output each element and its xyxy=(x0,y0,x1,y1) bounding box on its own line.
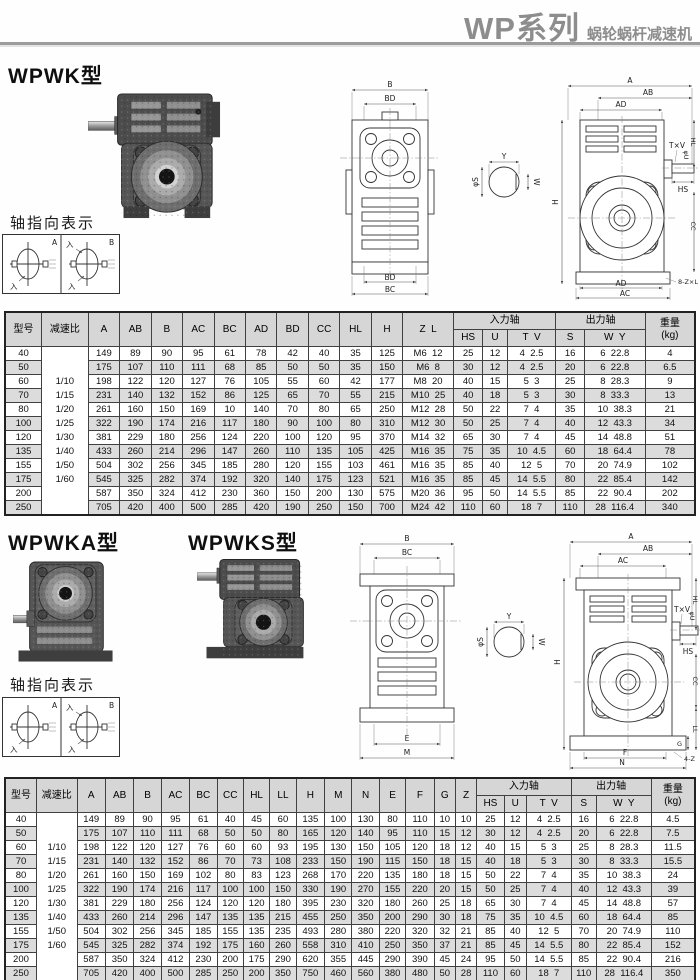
data-cell: 149 xyxy=(88,347,119,361)
data-cell: 160 xyxy=(243,939,269,953)
column-header: A xyxy=(88,312,119,347)
data-cell: 10 4.5 xyxy=(526,911,571,925)
data-cell: 42 xyxy=(277,347,308,361)
data-cell: 15 xyxy=(455,883,476,897)
data-cell: 55 xyxy=(340,389,371,403)
data-cell: 587 xyxy=(77,953,105,967)
data-cell: 40 xyxy=(477,855,504,869)
data-cell: 261 xyxy=(88,403,119,417)
data-cell: 95 xyxy=(453,487,482,501)
data-cell: 45 xyxy=(504,939,526,953)
column-subheader: S xyxy=(556,330,584,347)
data-cell: 20 xyxy=(556,361,584,375)
data-cell: 100 xyxy=(243,883,269,897)
table-row: 1203812291802561241201201803952303201802… xyxy=(5,897,695,911)
data-cell: 140 xyxy=(277,473,308,487)
data-cell: 558 xyxy=(296,939,324,953)
data-cell: 95 xyxy=(477,953,504,967)
data-cell: 73 xyxy=(243,855,269,869)
data-cell: 190 xyxy=(277,501,308,516)
column-header: BC xyxy=(214,312,245,347)
data-cell: 135 xyxy=(308,445,339,459)
data-cell: 285 xyxy=(214,501,245,516)
data-cell: 420 xyxy=(245,501,276,516)
data-cell: 18 7 xyxy=(526,967,571,980)
dim-label: φU xyxy=(688,611,696,620)
data-cell: 50 xyxy=(434,967,455,980)
axis-cell-label: B xyxy=(109,238,114,247)
data-cell: 18 xyxy=(434,869,455,883)
input-direction-mark: 入 xyxy=(10,282,18,291)
data-cell: 202 xyxy=(645,487,695,501)
data-cell: 285 xyxy=(190,967,217,980)
data-cell: 132 xyxy=(151,389,182,403)
ratio-cell: 1/101/151/201/251/301/401/501/60 xyxy=(42,347,89,516)
data-cell: 75 xyxy=(453,445,482,459)
data-cell: 22 85.4 xyxy=(596,939,651,953)
data-cell: 355 xyxy=(325,953,352,967)
data-cell: 108 xyxy=(270,855,296,869)
data-cell: 233 xyxy=(296,855,324,869)
data-cell: 70 xyxy=(571,925,596,939)
data-cell: 10 xyxy=(455,813,476,827)
data-cell: 120 xyxy=(151,375,182,389)
data-cell: 25 xyxy=(483,417,507,431)
data-cell: M12 30 xyxy=(403,417,454,431)
drawing-note: 4-Z xyxy=(684,755,695,763)
data-cell: 545 xyxy=(77,939,105,953)
data-cell: 20 74.9 xyxy=(596,925,651,939)
data-cell: 152 xyxy=(651,939,695,953)
data-cell: 57 xyxy=(651,897,695,911)
column-subheader: T V xyxy=(507,330,556,347)
data-cell: 195 xyxy=(296,841,324,855)
data-cell: 340 xyxy=(645,501,695,516)
data-cell: 10 38.3 xyxy=(584,403,645,417)
data-cell: 120 xyxy=(308,431,339,445)
model-cell: 250 xyxy=(5,967,36,980)
table-row: 6019812212012776105556042177M8 2040155 3… xyxy=(5,375,695,389)
data-cell: 14 5.5 xyxy=(507,473,556,487)
data-cell: 61 xyxy=(214,347,245,361)
data-cell: 504 xyxy=(88,459,119,473)
model-cell: 120 xyxy=(5,431,42,445)
ratio-value: 1/20 xyxy=(37,869,77,883)
data-cell: 35 xyxy=(571,869,596,883)
ratio-value: 1/25 xyxy=(42,417,88,431)
data-cell: 152 xyxy=(183,389,214,403)
data-cell: 123 xyxy=(340,473,371,487)
data-cell: 150 xyxy=(352,841,379,855)
axis-cell-label: A xyxy=(52,701,58,710)
data-cell: 229 xyxy=(120,431,151,445)
dim-label: AB xyxy=(643,544,653,553)
data-cell: 324 xyxy=(134,953,161,967)
data-cell: 261 xyxy=(77,869,105,883)
data-cell: 65 xyxy=(340,403,371,417)
data-cell: 250 xyxy=(308,501,339,516)
data-cell: 420 xyxy=(120,501,151,516)
dim-label: CC xyxy=(691,676,699,686)
data-cell: 410 xyxy=(352,939,379,953)
ratio-value: 1/40 xyxy=(37,911,77,925)
data-cell: 6 22.8 xyxy=(596,827,651,841)
data-cell: 110 xyxy=(151,361,182,375)
data-cell: 200 xyxy=(217,953,243,967)
data-cell: 216 xyxy=(183,417,214,431)
data-cell: M16 35 xyxy=(403,459,454,473)
data-cell: 214 xyxy=(134,911,161,925)
data-cell: 70 xyxy=(308,389,339,403)
column-header: Z xyxy=(455,778,476,813)
data-cell: 175 xyxy=(308,473,339,487)
data-cell: 155 xyxy=(379,883,405,897)
data-cell: 235 xyxy=(270,925,296,939)
data-cell: 75 xyxy=(477,911,504,925)
data-cell: 110 xyxy=(453,501,482,516)
data-cell: 149 xyxy=(77,813,105,827)
dim-label: AD xyxy=(616,279,627,288)
data-cell: 290 xyxy=(270,953,296,967)
data-cell: 110 xyxy=(406,827,434,841)
data-cell: 28 116.4 xyxy=(584,501,645,516)
column-header: M xyxy=(325,778,352,813)
data-cell: 120 xyxy=(243,897,269,911)
data-cell: 147 xyxy=(214,445,245,459)
data-cell: 80 xyxy=(571,939,596,953)
column-subheader: W Y xyxy=(596,796,651,813)
data-cell: 480 xyxy=(406,967,434,980)
data-cell: 155 xyxy=(308,459,339,473)
dim-label: HS xyxy=(678,185,689,194)
data-cell: 68 xyxy=(214,361,245,375)
column-header: E xyxy=(379,778,405,813)
data-cell: 127 xyxy=(161,841,189,855)
dim-label: H xyxy=(551,199,560,205)
data-cell: 120 xyxy=(277,459,308,473)
column-header: 入力轴 xyxy=(453,312,555,330)
column-subheader: W Y xyxy=(584,330,645,347)
table-row: 12038122918025612422010012095370M14 3265… xyxy=(5,431,695,445)
column-header: 型号 xyxy=(5,312,42,347)
table-row: 8026116015016910280831232681702201351801… xyxy=(5,869,695,883)
data-cell: 15.5 xyxy=(651,855,695,869)
data-cell: 110 xyxy=(477,967,504,980)
data-cell: 177 xyxy=(371,375,402,389)
data-cell: 30 xyxy=(483,431,507,445)
data-cell: 50 xyxy=(483,487,507,501)
data-cell: 560 xyxy=(352,967,379,980)
data-cell: 85 xyxy=(477,925,504,939)
model-cell: 175 xyxy=(5,939,36,953)
data-cell: 150 xyxy=(325,855,352,869)
data-cell: 10 38.3 xyxy=(596,869,651,883)
data-cell: 10 xyxy=(434,813,455,827)
model-cell: 200 xyxy=(5,487,42,501)
data-cell: 61 xyxy=(190,813,217,827)
data-cell: 100 xyxy=(308,417,339,431)
column-header: H xyxy=(371,312,402,347)
dim-label: BD xyxy=(385,273,396,282)
data-cell: 12 xyxy=(483,361,507,375)
data-cell: 6 22.8 xyxy=(584,347,645,361)
data-cell: 374 xyxy=(183,473,214,487)
dim-label: Y xyxy=(506,612,512,621)
data-cell: 24 xyxy=(455,953,476,967)
data-cell: 60 xyxy=(556,445,584,459)
data-cell: 360 xyxy=(245,487,276,501)
data-cell: 250 xyxy=(325,911,352,925)
dim-label: W xyxy=(537,638,546,646)
data-cell: 85 xyxy=(571,953,596,967)
data-cell: 55 xyxy=(277,375,308,389)
dim-label: BD xyxy=(385,94,396,103)
data-cell: M6 12 xyxy=(403,347,454,361)
data-cell: 700 xyxy=(371,501,402,516)
model-cell: 120 xyxy=(5,897,36,911)
table-row: 7023114013215286125657055215M10 2540185 … xyxy=(5,389,695,403)
data-cell: 70 xyxy=(556,459,584,473)
data-cell: 216 xyxy=(651,953,695,967)
data-cell: 107 xyxy=(120,361,151,375)
data-cell: 4 xyxy=(645,347,695,361)
data-cell: 7 4 xyxy=(507,403,556,417)
column-header: 出力轴 xyxy=(556,312,645,330)
data-cell: 250 xyxy=(217,967,243,980)
side-view: A AB AD H T×V xyxy=(551,76,698,300)
data-cell: 39 xyxy=(651,883,695,897)
data-cell: 28 xyxy=(455,967,476,980)
data-cell: 190 xyxy=(120,417,151,431)
data-cell: 14 48.8 xyxy=(584,431,645,445)
data-cell: 200 xyxy=(308,487,339,501)
table-row: 5017510711011168505080165120140951101512… xyxy=(5,827,695,841)
data-cell: 95 xyxy=(183,347,214,361)
column-header: A xyxy=(77,778,105,813)
wpwka-wpwks-dimension-drawing: B BC E M xyxy=(344,530,700,774)
data-cell: 78 xyxy=(645,445,695,459)
data-cell: 40 xyxy=(571,883,596,897)
data-cell: 120 xyxy=(325,827,352,841)
data-cell: 302 xyxy=(105,925,133,939)
data-cell: 380 xyxy=(352,925,379,939)
shaft-section: Y W φS xyxy=(471,152,541,197)
data-cell: 374 xyxy=(161,939,189,953)
data-cell: 130 xyxy=(352,813,379,827)
data-cell: 45 xyxy=(556,431,584,445)
data-cell: 12 5 xyxy=(507,459,556,473)
data-cell: 220 xyxy=(379,925,405,939)
data-cell: 260 xyxy=(105,911,133,925)
data-cell: 169 xyxy=(161,869,189,883)
wpwks-product-photo xyxy=(197,553,311,661)
data-cell: 500 xyxy=(161,967,189,980)
data-cell: 324 xyxy=(151,487,182,501)
data-cell: 231 xyxy=(77,855,105,869)
data-cell: 110 xyxy=(134,827,161,841)
data-cell: 40 xyxy=(308,347,339,361)
data-cell: 4 2.5 xyxy=(526,813,571,827)
dim-label: W xyxy=(532,178,541,186)
data-cell: 80 xyxy=(340,417,371,431)
data-cell: 40 xyxy=(453,375,482,389)
dim-label: T×V xyxy=(668,141,686,150)
table-row: 1354332602142961471351352154552503502002… xyxy=(5,911,695,925)
data-cell: 220 xyxy=(245,431,276,445)
data-cell: 350 xyxy=(105,953,133,967)
data-cell: 50 xyxy=(453,403,482,417)
table-row: 155504302256345185280120155103461M16 358… xyxy=(5,459,695,473)
data-cell: 120 xyxy=(134,841,161,855)
data-cell: 185 xyxy=(214,459,245,473)
data-cell: 216 xyxy=(161,883,189,897)
drawing-note: 8-Z×L xyxy=(678,278,698,286)
data-cell: 493 xyxy=(296,925,324,939)
column-header: BD xyxy=(277,312,308,347)
data-cell: 76 xyxy=(214,375,245,389)
data-cell: 200 xyxy=(243,967,269,980)
column-subheader: HS xyxy=(453,330,482,347)
data-cell: 140 xyxy=(120,389,151,403)
data-cell: 60 xyxy=(270,813,296,827)
data-cell: 296 xyxy=(183,445,214,459)
input-direction-mark: 入 xyxy=(10,745,18,754)
shaft-section: Y W φS xyxy=(476,612,546,657)
data-cell: 231 xyxy=(88,389,119,403)
model-cell: 100 xyxy=(5,417,42,431)
table-row: 6019812212012776606093195130150105120181… xyxy=(5,841,695,855)
data-cell: 60 xyxy=(243,841,269,855)
data-cell: 103 xyxy=(340,459,371,473)
dim-label: AD xyxy=(616,100,627,109)
data-cell: M6 8 xyxy=(403,361,454,375)
data-cell: 5 3 xyxy=(526,841,571,855)
data-cell: 381 xyxy=(77,897,105,911)
ratio-value: 1/15 xyxy=(42,389,88,403)
data-cell: 20 xyxy=(571,827,596,841)
data-cell: 111 xyxy=(161,827,189,841)
data-cell: 22 90.4 xyxy=(596,953,651,967)
column-subheader: S xyxy=(571,796,596,813)
side-view: A AB AC H xyxy=(553,532,700,770)
data-cell: 150 xyxy=(134,869,161,883)
data-cell: 30 xyxy=(477,827,504,841)
data-cell: 40 xyxy=(556,417,584,431)
data-cell: 30 xyxy=(571,855,596,869)
data-cell: 7 4 xyxy=(526,869,571,883)
data-cell: 12 xyxy=(483,347,507,361)
table-row: 200587350324412230360150200130575M20 369… xyxy=(5,487,695,501)
column-header: AD xyxy=(245,312,276,347)
ratio-value: 1/20 xyxy=(42,403,88,417)
data-cell: 18 xyxy=(434,855,455,869)
column-subheader: HS xyxy=(477,796,504,813)
data-cell: 18 64.4 xyxy=(584,445,645,459)
model-cell: 200 xyxy=(5,953,36,967)
data-cell: 280 xyxy=(245,459,276,473)
data-cell: 12 xyxy=(455,827,476,841)
data-cell: 350 xyxy=(406,939,434,953)
dim-label: A xyxy=(628,532,634,541)
data-cell: 10 xyxy=(214,403,245,417)
column-header: Z L xyxy=(403,312,454,347)
model-cell: 80 xyxy=(5,403,42,417)
data-cell: 21 xyxy=(645,403,695,417)
ratio-value: 1/25 xyxy=(37,883,77,897)
data-cell: 142 xyxy=(645,473,695,487)
data-cell: 35 xyxy=(504,911,526,925)
data-cell: 25 xyxy=(556,375,584,389)
data-cell: 455 xyxy=(296,911,324,925)
dim-label: M xyxy=(404,748,410,757)
data-cell: 198 xyxy=(88,375,119,389)
data-cell: 68 xyxy=(190,827,217,841)
data-cell: 130 xyxy=(340,487,371,501)
dim-label: HL xyxy=(689,138,697,147)
data-cell: 25 xyxy=(453,347,482,361)
dim-label: AC xyxy=(620,289,630,298)
data-cell: 40 xyxy=(504,925,526,939)
data-cell: 215 xyxy=(371,389,402,403)
data-cell: 150 xyxy=(151,403,182,417)
data-cell: 345 xyxy=(161,925,189,939)
column-header: 减速比 xyxy=(42,312,89,347)
data-cell: 620 xyxy=(296,953,324,967)
data-cell: 322 xyxy=(88,417,119,431)
data-cell: 115 xyxy=(379,855,405,869)
data-cell: 7 4 xyxy=(507,431,556,445)
data-cell: 105 xyxy=(340,445,371,459)
data-cell: 16 xyxy=(571,813,596,827)
data-cell: 250 xyxy=(379,939,405,953)
data-cell: 60 xyxy=(217,841,243,855)
data-cell: 110 xyxy=(556,501,584,516)
data-cell: 160 xyxy=(120,403,151,417)
data-cell: 6.5 xyxy=(645,361,695,375)
ratio-value: 1/30 xyxy=(37,897,77,911)
data-cell: 180 xyxy=(270,897,296,911)
data-cell: 24 xyxy=(651,869,695,883)
data-cell: 11.5 xyxy=(651,841,695,855)
data-cell: 256 xyxy=(161,897,189,911)
gearbox-photo-shapes xyxy=(13,562,113,662)
data-cell: 50 xyxy=(243,827,269,841)
data-cell: 95 xyxy=(161,813,189,827)
axis-direction-diagram-1: A 入 B 入 入 xyxy=(2,234,120,294)
column-header: G xyxy=(434,778,455,813)
data-cell: 350 xyxy=(120,487,151,501)
data-cell: 395 xyxy=(296,897,324,911)
data-cell: 350 xyxy=(352,911,379,925)
data-cell: 268 xyxy=(296,869,324,883)
table-row: 401/101/151/201/251/301/401/501/60149899… xyxy=(5,813,695,827)
input-direction-mark: 入 xyxy=(68,745,76,754)
data-cell: 504 xyxy=(77,925,105,939)
wpwk-dimension-drawing: B BD BD BC xyxy=(332,74,698,302)
table-row: 2005873503244122302001752906203554452903… xyxy=(5,953,695,967)
series-subtitle: 蜗轮蜗杆减速机 xyxy=(587,26,692,43)
data-cell: 83 xyxy=(243,869,269,883)
column-header: 入力轴 xyxy=(477,778,571,796)
data-cell: M10 25 xyxy=(403,389,454,403)
data-cell: 25 xyxy=(477,813,504,827)
data-cell: 20 74.9 xyxy=(584,459,645,473)
data-cell: 330 xyxy=(296,883,324,897)
axis-direction-label-2: 轴指向表示 xyxy=(10,674,95,695)
data-cell: 100 xyxy=(325,813,352,827)
column-header: LL xyxy=(270,778,296,813)
data-cell: 22 90.4 xyxy=(584,487,645,501)
